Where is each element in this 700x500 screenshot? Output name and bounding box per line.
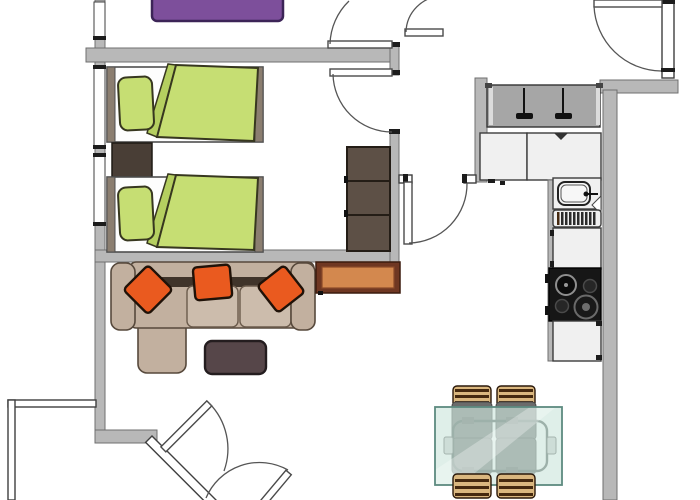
chair-stripe xyxy=(499,493,533,496)
door-hall-living-leaf xyxy=(404,182,412,244)
door-entry-arc-1 xyxy=(209,403,228,471)
bed1-duvet xyxy=(157,65,258,141)
window-1 xyxy=(94,2,105,38)
door-entry-leaf-1 xyxy=(161,401,212,452)
window-2 xyxy=(94,68,105,147)
bed2-pillow xyxy=(118,186,155,241)
drainer-bar xyxy=(593,212,596,225)
wardrobe xyxy=(347,147,390,251)
window-sill-mark xyxy=(93,36,106,40)
window-sill-mark xyxy=(93,222,106,226)
floor-plan xyxy=(0,0,700,500)
jamb-mark xyxy=(661,68,675,72)
door-entry-leaf-2 xyxy=(259,470,291,500)
jamb-mark xyxy=(661,0,675,4)
drainer-bar xyxy=(581,212,584,225)
bed2-duvet xyxy=(157,175,258,250)
chair-stripe xyxy=(499,486,533,489)
closet-rail-bar xyxy=(516,113,533,119)
wall-right-exterior xyxy=(603,90,617,500)
door-bedroom-twin-arc xyxy=(333,74,392,132)
base-cabinet-1 xyxy=(553,228,601,269)
cooktop-tab xyxy=(545,274,550,283)
cabinet-handle xyxy=(550,230,554,236)
bedroom-twin xyxy=(107,64,390,252)
window-sill-mark xyxy=(93,145,106,149)
balcony-wall-horizontal xyxy=(8,400,96,407)
chair-stripe xyxy=(455,486,489,489)
counter-corner xyxy=(527,133,601,180)
bed2-headboard xyxy=(107,177,115,252)
door-hall-living-arc xyxy=(409,183,467,243)
wall-between-bedrooms xyxy=(86,48,398,62)
drainer-bar xyxy=(565,212,568,225)
burner-small-right xyxy=(584,280,597,293)
closet-with-rails xyxy=(487,85,600,127)
bed1-headboard xyxy=(107,67,115,142)
dining-area xyxy=(435,386,562,498)
cabinet-handle xyxy=(550,261,554,267)
door-bedroom-top-leaf xyxy=(328,41,392,48)
balcony-wall-vertical xyxy=(8,400,15,500)
wall-entry-angled xyxy=(146,436,247,500)
door-hall-topright-arc xyxy=(594,6,661,71)
bedroom-top xyxy=(152,0,283,21)
kitchen xyxy=(480,83,603,361)
burner-center-dot xyxy=(564,283,568,287)
drainer-bar xyxy=(577,212,580,225)
closet-rail-bar xyxy=(555,113,572,119)
bed1-pillow xyxy=(118,76,155,131)
drainer-bar xyxy=(585,212,588,225)
window-3 xyxy=(94,156,105,224)
drainer-bar xyxy=(589,212,592,225)
drainer-bar xyxy=(569,212,572,225)
cabinet-corner-mark xyxy=(596,355,602,360)
door-hall-top-leaf xyxy=(405,29,443,36)
door-frame-top-right xyxy=(662,0,674,78)
counter-left xyxy=(480,133,527,180)
counter-nib xyxy=(488,179,495,183)
cooktop-tab xyxy=(545,306,550,315)
wall-hall-partition-lower xyxy=(390,133,399,262)
chair-stripe xyxy=(455,389,489,392)
door-hall-top-arc xyxy=(406,0,442,32)
jamb-mark xyxy=(462,174,467,183)
throw-pillow-2 xyxy=(193,264,233,300)
windows xyxy=(93,2,106,226)
chair-stripe xyxy=(499,389,533,392)
coffee-table xyxy=(205,341,266,374)
base-cabinet-2 xyxy=(553,321,601,361)
closet-side-panel xyxy=(596,87,600,125)
wardrobe-handle xyxy=(344,210,348,217)
door-bedroom-twin-leaf xyxy=(330,69,392,76)
closet-corner-mark xyxy=(596,83,603,88)
drainer-bar xyxy=(557,212,560,225)
living-room xyxy=(111,262,400,374)
sideboard-top xyxy=(322,267,394,288)
door-hall-topright-leaf xyxy=(594,0,662,7)
sideboard-knob xyxy=(318,291,323,295)
chair-stripe xyxy=(455,479,489,482)
chair-stripe xyxy=(455,493,489,496)
closet-corner-mark xyxy=(485,83,492,88)
double-bed-purple xyxy=(152,0,283,21)
burner-center-dot xyxy=(582,303,590,311)
chair-stripe xyxy=(499,395,533,398)
closet-side-panel xyxy=(489,87,493,125)
drainer-bar xyxy=(573,212,576,225)
burner-small-left xyxy=(556,300,569,313)
drainer-bar xyxy=(561,212,564,225)
door-bedroom-top-arc xyxy=(330,1,349,44)
floor-plan-canvas xyxy=(0,0,700,500)
chair-stripe xyxy=(455,395,489,398)
chair-stripe xyxy=(499,479,533,482)
cabinet-corner-mark xyxy=(596,321,602,326)
window-sill-mark xyxy=(93,65,106,69)
window-sill-mark xyxy=(93,153,106,157)
nightstand xyxy=(112,143,152,177)
counter-nib xyxy=(500,181,505,185)
wardrobe-handle xyxy=(344,176,348,183)
